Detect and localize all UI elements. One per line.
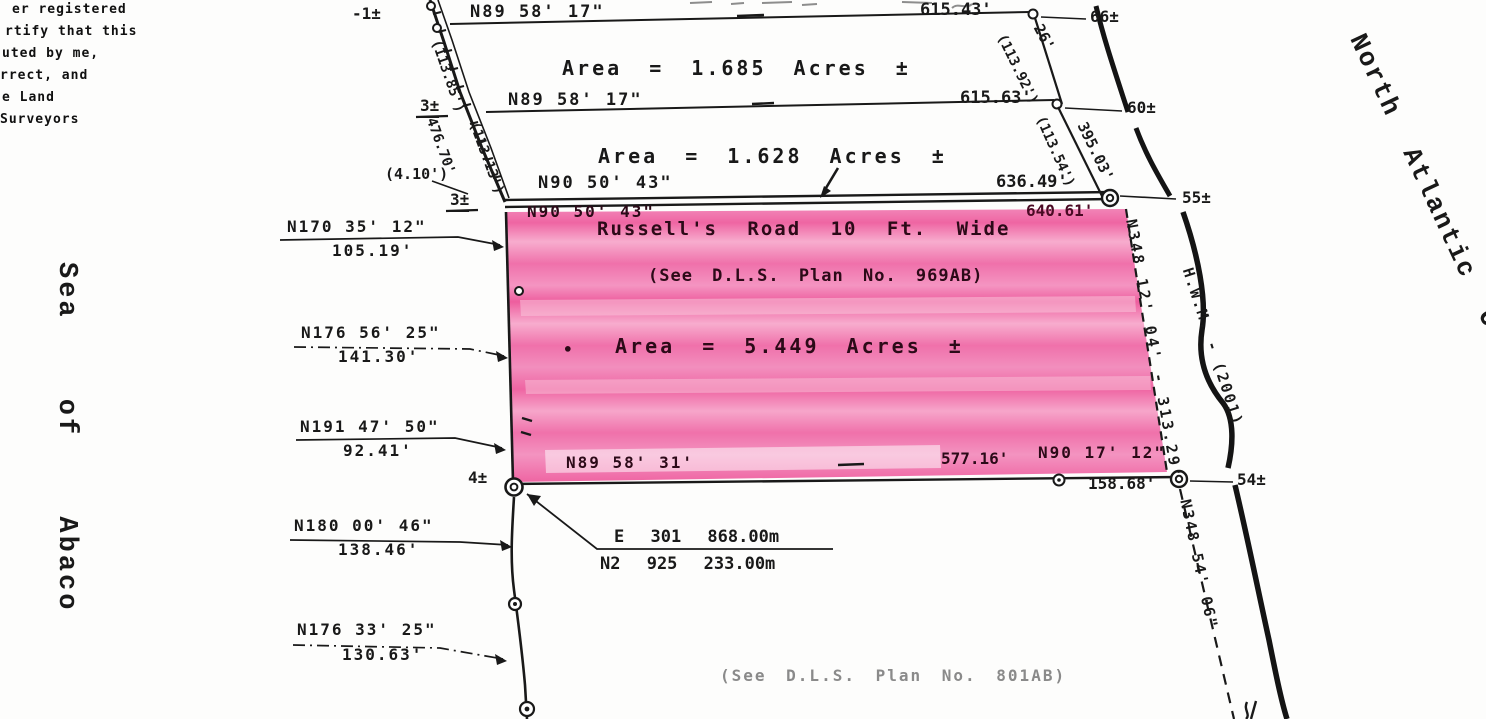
cert-note-line: rrect, and: [0, 69, 88, 83]
row2-bearing: N89 58' 17": [508, 92, 643, 110]
cert-note-line: e Land: [2, 91, 55, 105]
call-distance: 138.46': [338, 542, 419, 559]
row3-left-note: (4.10'): [385, 167, 448, 183]
scan-fragment-se: [1246, 701, 1256, 719]
plan-reference-801: (See D.L.S. Plan No. 801AB): [720, 668, 1066, 685]
row2-right-tick: 60±: [1127, 100, 1156, 117]
benchmark-northing: N2 925 233.00m: [600, 556, 775, 574]
survey-plan-scan: er registered rtify that this uted by me…: [0, 0, 1486, 719]
road-north-line: [505, 192, 1112, 200]
row2-left-tick: 3±: [420, 98, 439, 118]
cert-note-line: uted by me,: [2, 47, 99, 61]
row3-right-tick: 55±: [1182, 190, 1211, 207]
road-distance-south: 640.61': [1026, 203, 1093, 220]
row1-right-tick: 66±: [1090, 9, 1119, 26]
survey-drawing: [0, 0, 1486, 719]
call-bearing: N176 56' 25": [301, 325, 441, 342]
call-bearing: N170 35' 12": [287, 219, 427, 236]
row1-distance: 615.43': [920, 2, 992, 20]
parcel3-area: Area = 5.449 Acres ±: [615, 336, 964, 357]
row3-bearing: N90 50' 43": [538, 175, 673, 193]
monument-circle: [506, 479, 523, 496]
monument-circle: [1102, 190, 1118, 206]
call-distance: 92.41': [343, 443, 413, 460]
call-bearing: N180 00' 46": [294, 518, 434, 535]
south-distance-2: 158.68': [1088, 476, 1155, 493]
cert-note-line: Surveyors: [0, 113, 79, 127]
call-distance: 130.63': [342, 647, 423, 664]
benchmark-easting: E 301 868.00m: [614, 529, 779, 547]
row1-bearing: N89 58' 17": [470, 4, 605, 22]
call-bearing: N191 47' 50": [300, 419, 440, 436]
south-distance: 577.16': [941, 451, 1008, 468]
call-bearing: N176 33' 25": [297, 622, 437, 639]
row3-left-tick: 3±: [450, 192, 469, 212]
west-tick: 4±: [468, 470, 487, 487]
row1-left-tick: -1±: [352, 6, 381, 23]
plan-reference-969: (See D.L.S. Plan No. 969AB): [648, 268, 983, 286]
south-right-tick: 54±: [1237, 472, 1266, 489]
parcel1-area: Area = 1.685 Acres ±: [562, 58, 911, 79]
cert-note-line: er registered: [12, 3, 127, 17]
road-name: Russell's Road 10 Ft. Wide: [597, 220, 1010, 240]
sea-of-abaco-label: Sea of Abaco: [52, 262, 80, 612]
area-bullet: •: [563, 342, 573, 359]
call-distance: 141.30': [338, 349, 419, 366]
call-distance: 105.19': [332, 243, 413, 260]
south-bearing: N89 58' 31': [566, 455, 694, 472]
south-bearing-2: N90 17' 12": [1038, 445, 1166, 462]
cert-note-line: rtify that this: [5, 25, 137, 39]
parcel2-area: Area = 1.628 Acres ±: [598, 146, 947, 167]
